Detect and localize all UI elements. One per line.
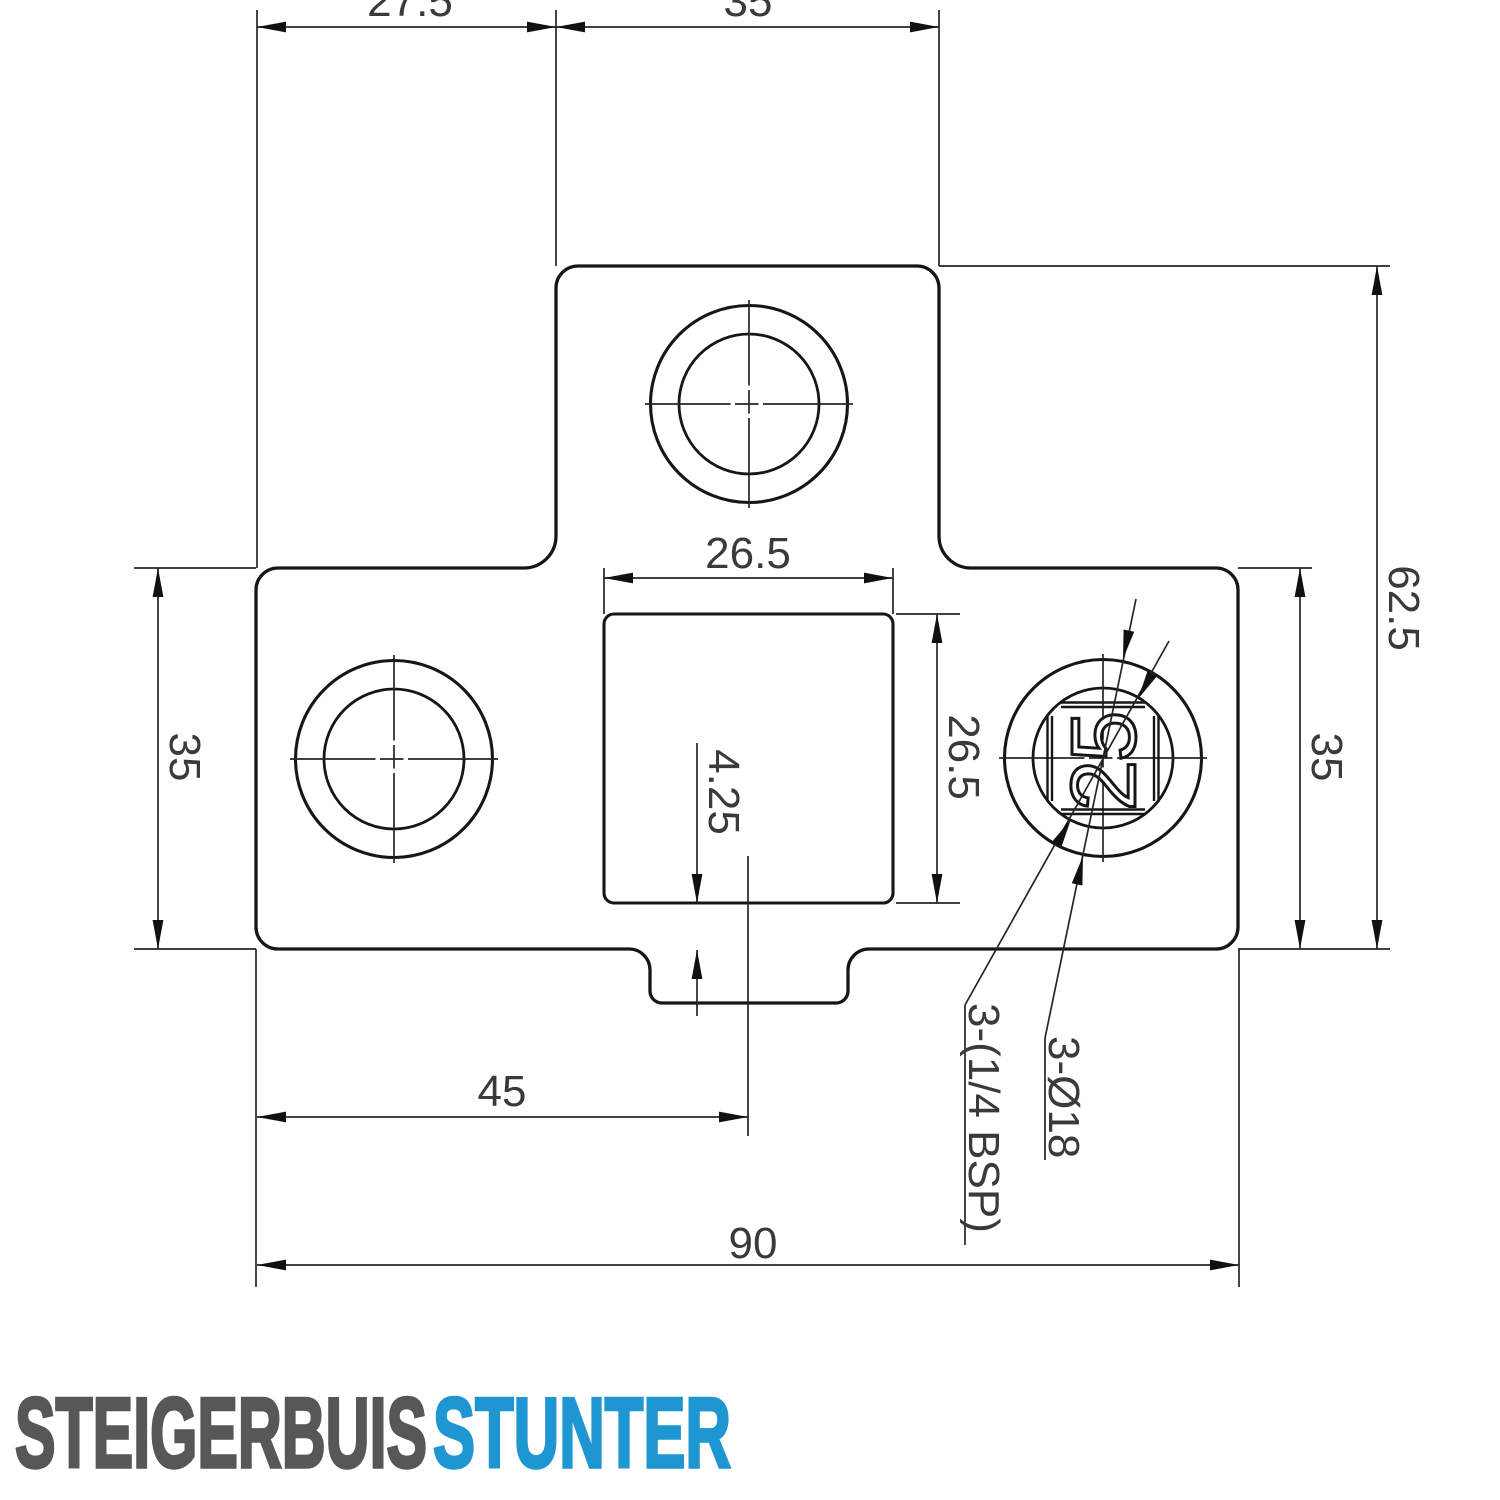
svg-text:26.5: 26.5 — [705, 529, 791, 578]
svg-text:STEIGERBUIS: STEIGERBUIS — [15, 1377, 427, 1488]
svg-text:25: 25 — [1053, 713, 1155, 811]
svg-text:62.5: 62.5 — [1379, 565, 1428, 651]
svg-text:3-(1/4 BSP): 3-(1/4 BSP) — [959, 1003, 1008, 1233]
svg-text:45: 45 — [478, 1067, 527, 1116]
svg-text:3-Ø18: 3-Ø18 — [1039, 1036, 1088, 1158]
svg-text:90: 90 — [729, 1219, 778, 1268]
svg-text:35: 35 — [724, 0, 773, 26]
svg-text:35: 35 — [160, 733, 209, 782]
svg-text:STUNTER: STUNTER — [433, 1377, 731, 1488]
svg-text:26.5: 26.5 — [939, 714, 988, 800]
svg-text:27.5: 27.5 — [367, 0, 453, 26]
svg-text:4.25: 4.25 — [699, 749, 748, 835]
svg-text:35: 35 — [1302, 733, 1351, 782]
